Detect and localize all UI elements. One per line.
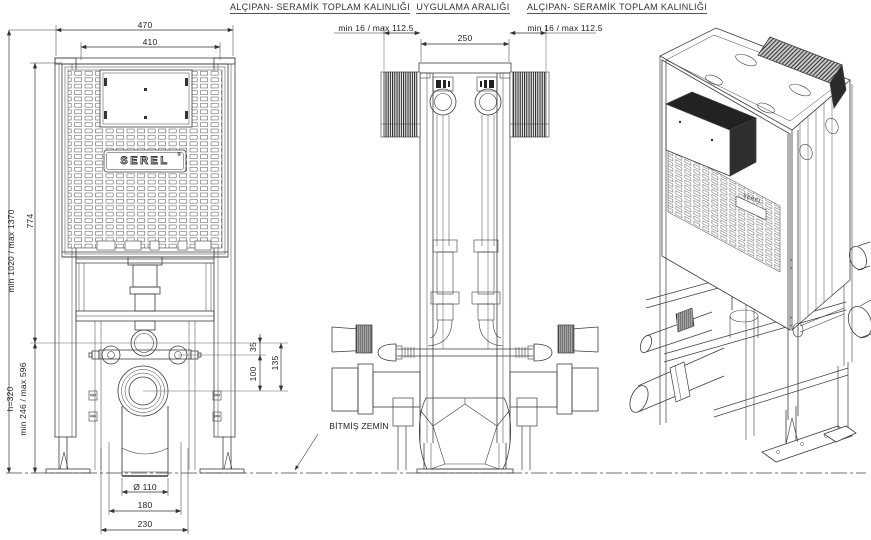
- dim-drain-span-inner: 180: [125, 500, 165, 510]
- label-wall-total-left: ALÇIPAN- SERAMİK TOPLAM KALINLIĞI: [220, 2, 420, 12]
- serel-logo: SEREL ®: [104, 150, 186, 172]
- dim-outlet-height: h=320: [5, 359, 15, 439]
- label-finished-floor: BİTMİŞ ZEMİN: [314, 421, 404, 431]
- dim-height-range: min 1020 / max 1370: [6, 191, 16, 311]
- label-application-gap: UYGULAMA ARALIĞI: [411, 2, 515, 12]
- front-view-linework: [46, 58, 244, 476]
- dim-drain-diameter: Ø 110: [115, 482, 175, 492]
- dim-width-inner: 410: [130, 37, 170, 47]
- dim-tank-height: 774: [25, 201, 35, 241]
- dim-drain-span-outer: 230: [125, 519, 165, 529]
- technical-drawing-canvas: ALÇIPAN- SERAMİK TOPLAM KALINLIĞI UYGULA…: [0, 0, 871, 540]
- dim-wall-left: min 16 / max 112.5: [326, 23, 426, 33]
- dim-width-outer: 470: [125, 20, 165, 30]
- dim-offset-100: 100: [248, 354, 258, 394]
- dim-frame-depth: 250: [445, 33, 485, 43]
- label-wall-total-right: ALÇIPAN- SERAMİK TOPLAM KALINLIĞI: [517, 2, 717, 12]
- iso-view-linework: [626, 28, 871, 462]
- side-view-linework: [332, 63, 598, 473]
- registered-mark: ®: [177, 152, 181, 158]
- side-view-dimensions: [295, 26, 596, 470]
- dim-outlet-range: min 246 / max 596: [18, 344, 28, 454]
- dim-offset-135: 135: [270, 343, 280, 383]
- dim-wall-right: min 16 / max 112.5: [515, 23, 615, 33]
- drawing-linework: [0, 0, 871, 540]
